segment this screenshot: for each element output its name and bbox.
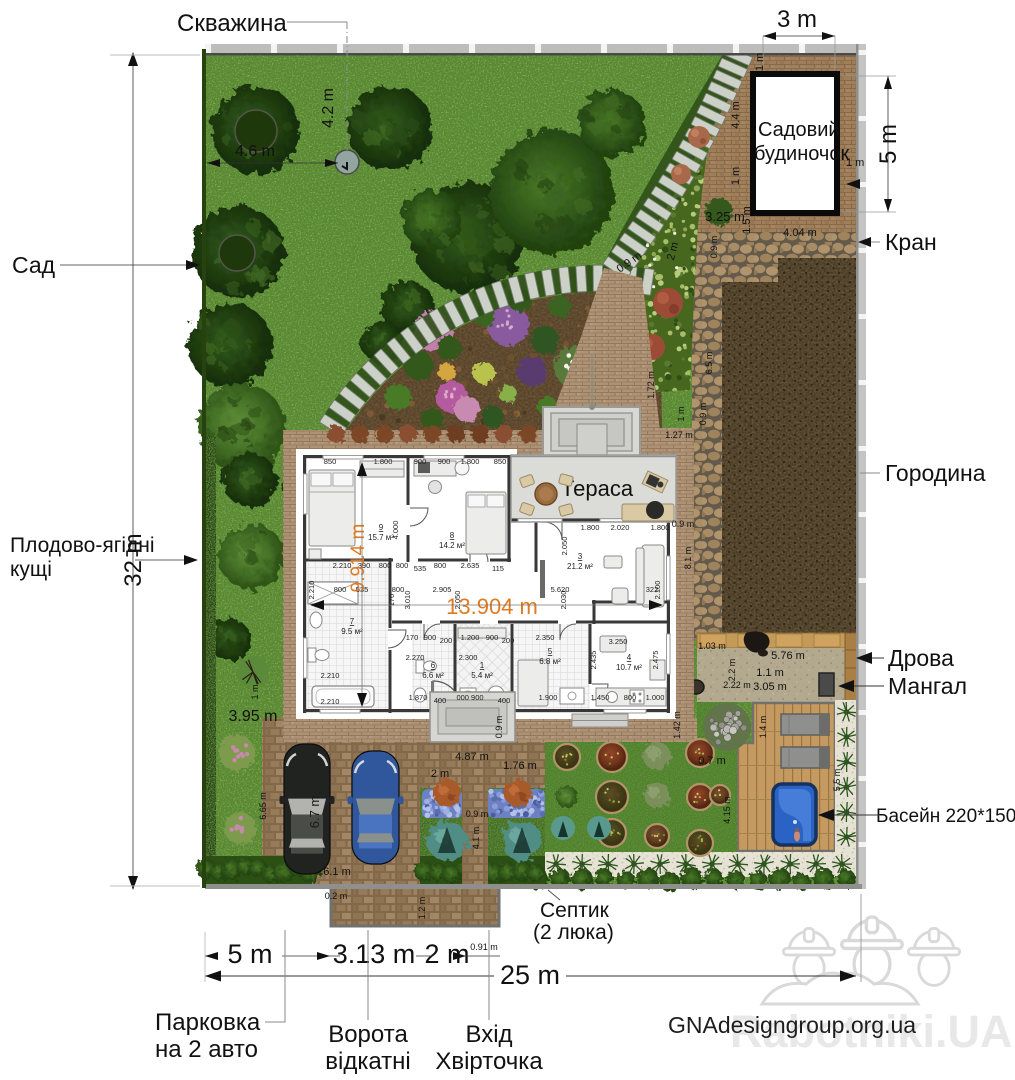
svg-text:5.5 m: 5.5 m [832, 769, 842, 792]
svg-text:900: 900 [414, 457, 427, 466]
svg-text:2.905: 2.905 [433, 585, 452, 594]
svg-text:6.7 m: 6.7 m [307, 796, 322, 829]
svg-text:4.87 m: 4.87 m [455, 751, 489, 763]
svg-text:9: 9 [379, 523, 384, 532]
svg-text:0.9 m: 0.9 m [672, 519, 695, 529]
svg-text:6.65 m: 6.65 m [258, 792, 268, 820]
svg-text:1 m: 1 m [676, 406, 686, 421]
svg-text:2.210: 2.210 [307, 581, 316, 600]
svg-text:1.4 m: 1.4 m [758, 716, 768, 739]
svg-text:6.5 m: 6.5 m [704, 352, 714, 375]
svg-text:3.010: 3.010 [403, 591, 412, 610]
svg-text:4.4 m: 4.4 m [730, 101, 742, 129]
svg-text:1.450: 1.450 [591, 693, 610, 702]
svg-text:4.6 m: 4.6 m [235, 143, 275, 160]
svg-text:3.05 m: 3.05 m [753, 681, 787, 693]
svg-text:1.000: 1.000 [646, 693, 665, 702]
svg-text:800: 800 [624, 693, 637, 702]
svg-text:4.000: 4.000 [391, 521, 400, 540]
svg-text:1.27 m: 1.27 m [665, 430, 693, 440]
svg-text:2.2 m: 2.2 m [727, 659, 737, 682]
svg-text:Плодово-ягідні: Плодово-ягідні [10, 534, 155, 557]
svg-text:Сад: Сад [12, 252, 56, 278]
svg-text:3: 3 [578, 552, 583, 561]
svg-text:(2 люка): (2 люка) [533, 921, 614, 944]
svg-text:800: 800 [379, 561, 392, 570]
svg-text:0.9 m: 0.9 m [466, 809, 489, 819]
svg-text:8.1 m: 8.1 m [683, 547, 693, 570]
svg-text:Парковка: Парковка [155, 1009, 261, 1036]
svg-text:відкатні: відкатні [325, 1048, 411, 1075]
svg-text:2.050: 2.050 [560, 537, 569, 556]
svg-text:1.900: 1.900 [539, 693, 558, 702]
svg-text:2.030: 2.030 [559, 591, 568, 610]
svg-text:1.03 m: 1.03 m [698, 641, 726, 651]
svg-text:0.7 m: 0.7 m [698, 755, 726, 767]
svg-text:4.2 m: 4.2 m [320, 88, 337, 128]
svg-text:5.4 м²: 5.4 м² [471, 671, 493, 680]
svg-text:Вхід: Вхід [465, 1021, 512, 1048]
svg-text:900: 900 [424, 633, 437, 642]
svg-text:1.870: 1.870 [409, 693, 428, 702]
svg-text:535: 535 [414, 564, 427, 573]
svg-text:1: 1 [480, 661, 485, 670]
svg-text:Городина: Городина [885, 460, 986, 486]
svg-text:6.1 m: 6.1 m [323, 866, 351, 878]
svg-text:кущі: кущі [10, 558, 52, 581]
svg-text:1.42 m: 1.42 m [672, 711, 682, 739]
svg-text:2.475: 2.475 [651, 651, 660, 670]
svg-text:2 m: 2 m [431, 768, 449, 780]
svg-text:3.25 m: 3.25 m [705, 209, 745, 224]
svg-text:850: 850 [324, 457, 337, 466]
svg-text:2.270: 2.270 [406, 653, 425, 662]
svg-text:6: 6 [431, 661, 436, 670]
svg-text:1.76 m: 1.76 m [503, 760, 537, 772]
svg-text:2.300: 2.300 [459, 653, 478, 662]
svg-text:0.9 m: 0.9 m [709, 236, 719, 259]
svg-text:3.13 m: 3.13 m [333, 939, 416, 969]
svg-text:1 m: 1 m [846, 157, 864, 169]
svg-text:3.250: 3.250 [609, 637, 628, 646]
svg-text:9.5 м²: 9.5 м² [341, 627, 363, 636]
svg-text:1.72 m: 1.72 m [646, 371, 656, 399]
svg-text:5 m: 5 m [227, 939, 272, 969]
svg-text:Садовий: Садовий [758, 119, 840, 141]
svg-text:400: 400 [434, 696, 447, 705]
svg-text:000 900: 000 900 [456, 693, 483, 702]
svg-text:25 m: 25 m [500, 960, 560, 990]
svg-text:170: 170 [387, 594, 396, 607]
svg-text:1.800: 1.800 [461, 457, 480, 466]
svg-text:1 m: 1 m [250, 684, 260, 699]
svg-text:Хвірточка: Хвірточка [435, 1048, 543, 1075]
svg-text:2.210: 2.210 [321, 671, 340, 680]
svg-text:2.435: 2.435 [589, 651, 598, 670]
svg-text:0.2 m: 0.2 m [325, 891, 348, 901]
svg-text:1 m: 1 m [754, 53, 766, 71]
svg-text:13.904 m: 13.904 m [446, 594, 538, 619]
svg-text:1.1 m: 1.1 m [756, 667, 784, 679]
svg-text:3 m: 3 m [777, 6, 817, 33]
svg-text:6.8 м²: 6.8 м² [539, 657, 561, 666]
svg-text:Септик: Септик [540, 899, 610, 922]
svg-text:Дрова: Дрова [888, 645, 954, 671]
svg-text:21.2 м²: 21.2 м² [567, 562, 593, 571]
svg-text:10.7 м²: 10.7 м² [616, 663, 642, 672]
svg-text:900: 900 [438, 457, 451, 466]
svg-text:900: 900 [486, 633, 499, 642]
svg-text:на 2 авто: на 2 авто [155, 1036, 258, 1063]
svg-text:1.800: 1.800 [374, 457, 393, 466]
svg-text:2.020: 2.020 [611, 523, 630, 532]
svg-text:200: 200 [502, 636, 515, 645]
svg-text:850: 850 [494, 457, 507, 466]
svg-text:2.635: 2.635 [461, 561, 480, 570]
svg-text:4.04 m: 4.04 m [783, 227, 817, 239]
svg-text:Скважина: Скважина [177, 10, 287, 37]
svg-text:170: 170 [406, 633, 419, 642]
svg-text:0.9 m: 0.9 m [494, 716, 504, 739]
svg-text:0.91 m: 0.91 m [470, 942, 498, 952]
svg-text:8: 8 [450, 531, 455, 540]
svg-text:6.6 м²: 6.6 м² [422, 671, 444, 680]
svg-text:800: 800 [334, 585, 347, 594]
svg-text:115: 115 [492, 564, 504, 573]
svg-text:3.95 m: 3.95 m [229, 708, 278, 725]
svg-text:7: 7 [350, 617, 355, 626]
svg-text:5: 5 [548, 647, 553, 656]
svg-text:1.800: 1.800 [651, 523, 670, 532]
svg-text:1.2 m: 1.2 m [417, 897, 427, 920]
svg-text:4: 4 [627, 653, 632, 662]
svg-text:5 m: 5 m [875, 124, 902, 164]
svg-text:2 m: 2 m [424, 939, 469, 969]
svg-text:14.2 м²: 14.2 м² [439, 541, 465, 550]
svg-text:200: 200 [440, 636, 453, 645]
svg-text:Басейн 220*150: Басейн 220*150 [876, 806, 1015, 827]
svg-text:1 m: 1 m [730, 167, 742, 185]
svg-text:5.76 m: 5.76 m [771, 650, 805, 662]
svg-text:будиночок: будиночок [754, 143, 849, 165]
svg-text:4.15 m: 4.15 m [722, 796, 732, 824]
svg-text:Кран: Кран [885, 229, 937, 255]
svg-text:2.350: 2.350 [536, 633, 555, 642]
svg-text:1.200: 1.200 [461, 633, 480, 642]
svg-text:GNAdesigngroup.org.ua: GNAdesigngroup.org.ua [668, 1012, 916, 1038]
svg-text:2.100: 2.100 [653, 581, 662, 600]
svg-text:9.914 m: 9.914 m [348, 524, 369, 593]
svg-text:2.22 m: 2.22 m [723, 680, 751, 690]
svg-text:Ворота: Ворота [328, 1021, 408, 1048]
svg-text:4.1 m: 4.1 m [471, 827, 481, 850]
svg-text:0.9 m: 0.9 m [698, 403, 708, 426]
svg-text:800: 800 [434, 561, 447, 570]
svg-text:Мангал: Мангал [888, 673, 967, 699]
svg-text:1.800: 1.800 [581, 523, 600, 532]
svg-text:400: 400 [498, 696, 511, 705]
svg-text:800: 800 [396, 561, 409, 570]
svg-text:2.210: 2.210 [321, 697, 340, 706]
